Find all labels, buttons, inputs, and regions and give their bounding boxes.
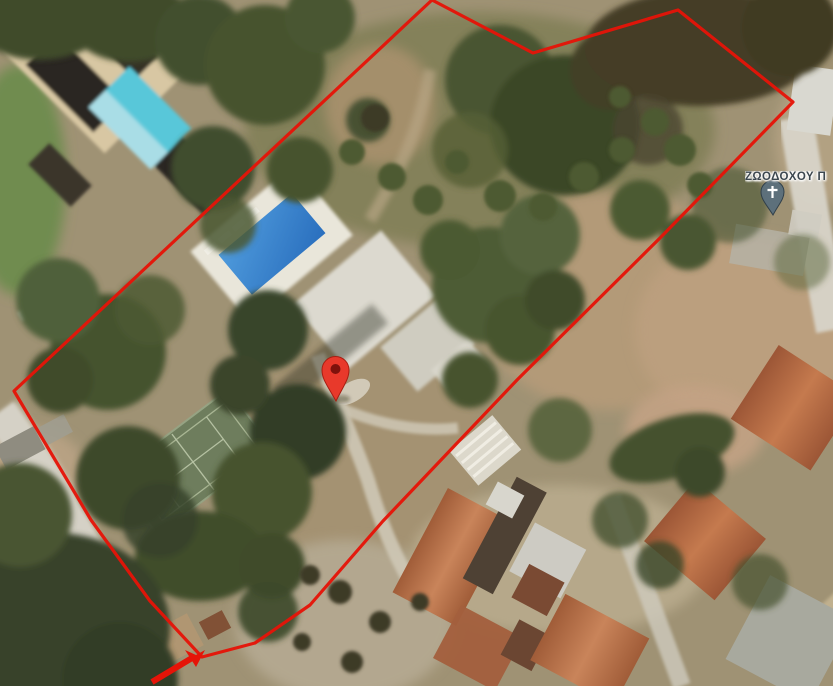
street-label: ΖΩΟΔΟΧΟΥ Π (745, 171, 833, 183)
satellite-imagery (0, 0, 833, 686)
satellite-map[interactable]: ΖΩΟΔΟΧΟΥ Π (0, 0, 833, 686)
